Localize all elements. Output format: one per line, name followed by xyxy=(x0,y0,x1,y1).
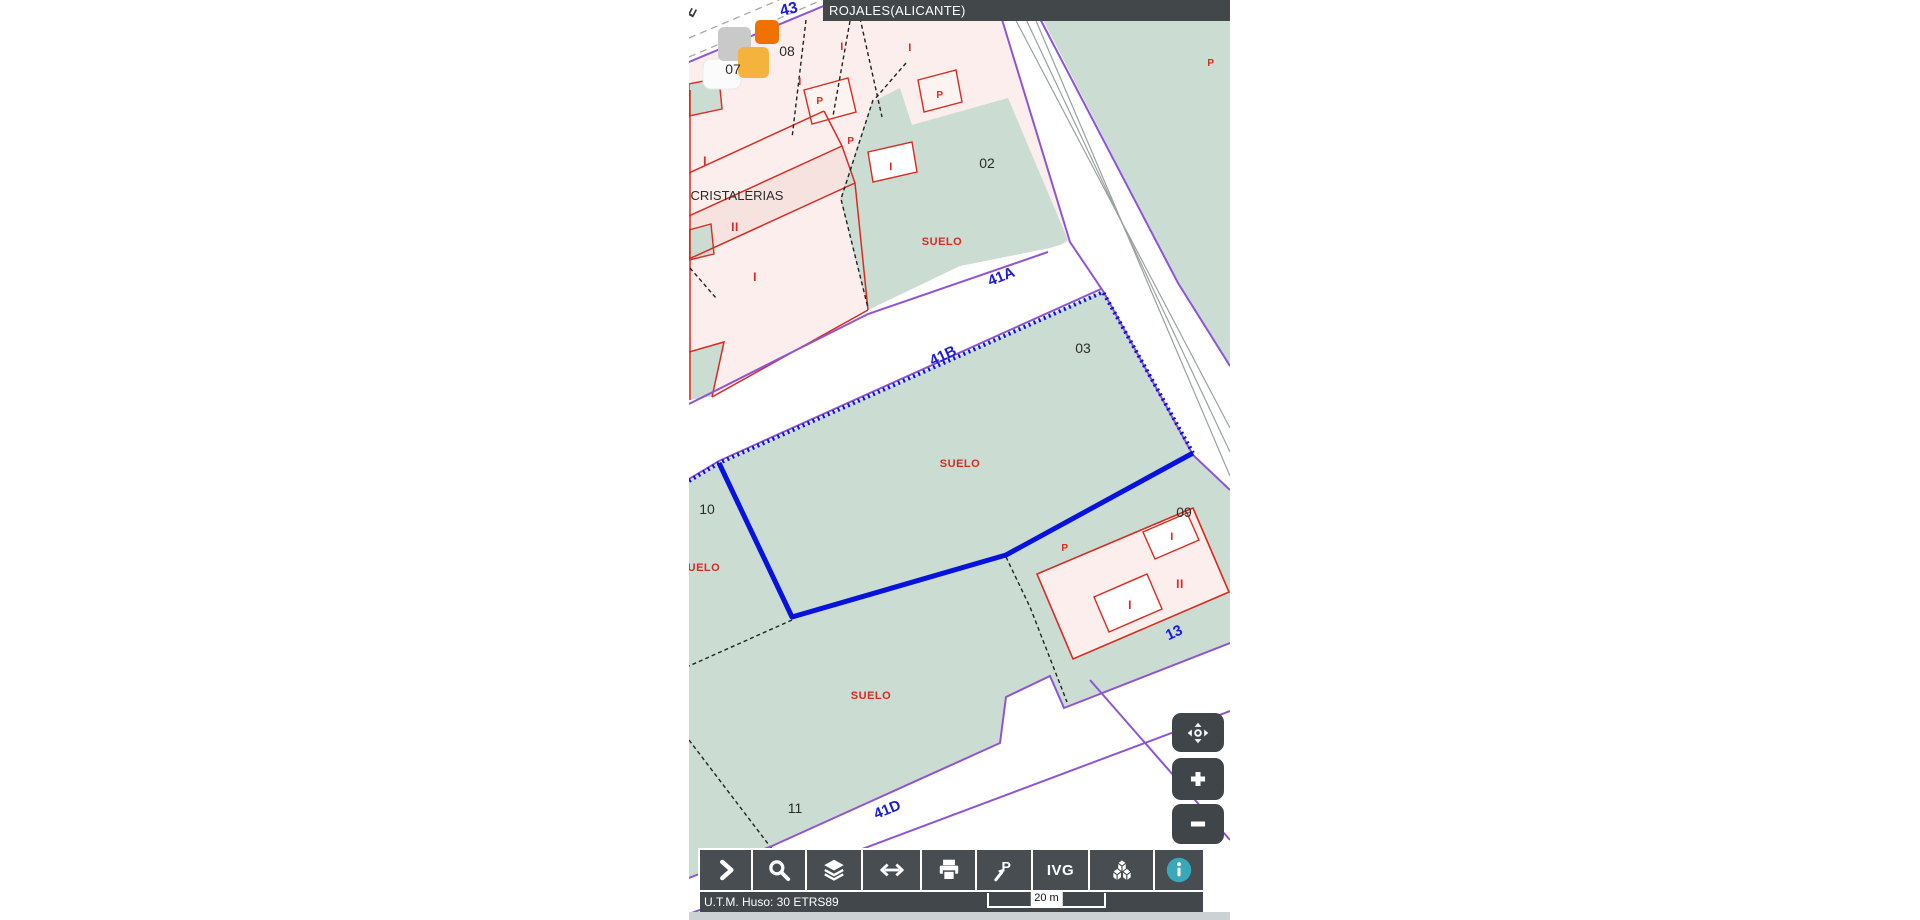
scale-bar: 20 m xyxy=(987,893,1106,908)
arrows-h-icon xyxy=(879,857,905,883)
parcel-number-10: 10 xyxy=(699,501,715,517)
toolbar-measure-button[interactable] xyxy=(863,850,920,890)
bottom-strip xyxy=(689,912,1230,920)
floors-label: I xyxy=(1128,598,1132,612)
patio-label: P xyxy=(1061,543,1068,554)
printer-icon xyxy=(936,857,962,883)
toolbar-print-button[interactable] xyxy=(922,850,975,890)
svg-text:P: P xyxy=(1001,859,1010,875)
layers-icon xyxy=(821,857,847,883)
minus-icon xyxy=(1185,811,1211,837)
toolbar-expand-panel-button[interactable] xyxy=(700,850,751,890)
parcel-number-09: 09 xyxy=(1176,504,1192,520)
floors-label: II xyxy=(731,220,739,234)
parcel-number-11: 11 xyxy=(788,800,803,816)
patio-label: P xyxy=(816,96,823,107)
suelo-label: SUELO xyxy=(922,236,962,248)
map-title-bar: ROJALES(ALICANTE) xyxy=(823,0,1230,21)
floors-label: I xyxy=(1170,531,1174,543)
pan-button[interactable] xyxy=(1172,713,1224,752)
datum-text: U.T.M. Huso: 30 ETRS89 xyxy=(704,895,839,909)
ivg-label: IVG xyxy=(1047,862,1074,879)
toolbar-ivg-button[interactable]: IVG xyxy=(1033,850,1088,890)
cadastral-map[interactable]: E430708IPIIPPIICRISTALERIASIII02SUELOP41… xyxy=(689,0,1230,912)
parcel-number-03: 03 xyxy=(1075,340,1091,356)
toolbar-parcel-point-button[interactable]: P xyxy=(977,850,1031,890)
floors-label: I xyxy=(798,76,802,88)
patio-label: P xyxy=(936,90,943,101)
toolbar-search-button[interactable] xyxy=(753,850,805,890)
patio-label: P xyxy=(1207,58,1214,69)
toolbar-layers-button[interactable] xyxy=(807,850,861,890)
floors-label: II xyxy=(1176,577,1184,591)
page: E430708IPIIPPIICRISTALERIASIII02SUELOP41… xyxy=(0,0,1920,920)
zoom-in-button[interactable] xyxy=(1172,758,1224,800)
parcel-number-02: 02 xyxy=(979,155,995,171)
floors-label: I xyxy=(889,161,893,173)
cubes-icon xyxy=(1109,857,1135,883)
chevron-right-icon xyxy=(713,857,739,883)
floors-label: I xyxy=(703,154,707,168)
suelo-label: SUELO xyxy=(689,562,720,574)
scale-label: 20 m xyxy=(1030,891,1062,906)
floors-label: I xyxy=(908,42,912,54)
zoom-controls xyxy=(1172,713,1224,844)
pointer-p-icon: P xyxy=(991,857,1017,883)
floors-label: I xyxy=(840,41,844,53)
toolbar-info-button[interactable] xyxy=(1155,850,1203,890)
street-name-cristalerias: CRISTALERIAS xyxy=(691,188,784,203)
floors-label: I xyxy=(753,270,757,284)
parcel-number-07: 07 xyxy=(725,61,741,77)
search-icon xyxy=(766,857,792,883)
move-icon xyxy=(1185,720,1211,746)
toolbar-view-3d-button[interactable] xyxy=(1090,850,1153,890)
plus-icon xyxy=(1185,766,1211,792)
map-toolbar: PIVG xyxy=(698,848,1205,892)
status-bar: U.T.M. Huso: 30 ETRS89 20 m xyxy=(700,892,1203,912)
suelo-label: SUELO xyxy=(851,690,891,702)
patio-label: P xyxy=(847,136,854,147)
parcel-number-08: 08 xyxy=(779,43,795,59)
map-viewport[interactable]: E430708IPIIPPIICRISTALERIASIII02SUELOP41… xyxy=(689,0,1230,920)
info-icon xyxy=(1166,857,1192,883)
zoom-out-button[interactable] xyxy=(1172,804,1224,844)
municipality-title: ROJALES(ALICANTE) xyxy=(829,3,966,18)
suelo-label: SUELO xyxy=(940,458,980,470)
green-wedge xyxy=(689,224,714,260)
